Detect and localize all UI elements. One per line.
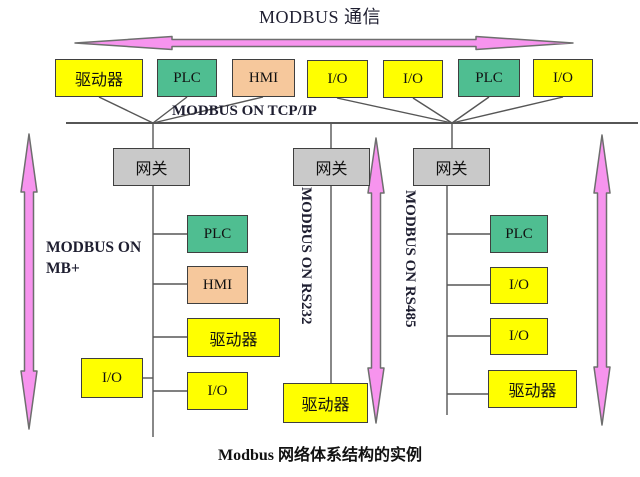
gateway-1: 网关 xyxy=(113,148,190,186)
branch1-device-hmi: HMI xyxy=(187,266,248,304)
branch1-protocol-label: MODBUS ON MB+ xyxy=(46,237,142,279)
branch3-device-io-2: I/O xyxy=(490,318,548,355)
link-io1-to-bus xyxy=(337,98,452,123)
branch1-device-plc: PLC xyxy=(187,215,248,253)
branch3-protocol-label: MODBUS ON RS485 xyxy=(401,190,418,386)
top-device-io-1: I/O xyxy=(307,60,368,98)
top-device-plc-2: PLC xyxy=(458,59,520,97)
tcpip-bus-label: MODBUS ON TCP/IP xyxy=(172,103,317,120)
top-device-plc-1: PLC xyxy=(157,59,217,97)
top-device-io-2: I/O xyxy=(383,60,443,98)
diagram-title: MODBUS 通信 xyxy=(0,3,640,29)
rs485-double-arrow xyxy=(594,135,610,425)
branch3-device-plc: PLC xyxy=(490,215,548,253)
link-drive-to-bus xyxy=(99,97,153,123)
link-io3-to-bus xyxy=(452,97,563,123)
branch3-device-drive: 驱动器 xyxy=(488,370,577,408)
top-device-hmi: HMI xyxy=(232,59,295,97)
gateway-3: 网关 xyxy=(413,148,490,186)
branch2-device-drive: 驱动器 xyxy=(283,383,368,423)
branch3-device-io-1: I/O xyxy=(490,267,548,304)
figure-caption: Modbus 网络体系结构的实例 xyxy=(0,441,640,465)
top-device-io-3: I/O xyxy=(533,59,593,97)
branch2-protocol-label: MODBUS ON RS232 xyxy=(297,187,314,383)
gateway-2: 网关 xyxy=(293,148,370,186)
branch1-device-io-left: I/O xyxy=(81,358,143,398)
rs232-double-arrow xyxy=(368,138,384,423)
branch1-device-drive: 驱动器 xyxy=(187,318,280,357)
mbplus-double-arrow xyxy=(21,134,37,429)
modbus-comm-double-arrow xyxy=(75,37,573,50)
modbus-network-diagram: MODBUS 通信 驱动器 PLC HMI I/O I/O PLC I/O MO… xyxy=(0,0,640,477)
top-device-drive: 驱动器 xyxy=(55,59,143,97)
branch1-device-io-right: I/O xyxy=(187,372,248,410)
